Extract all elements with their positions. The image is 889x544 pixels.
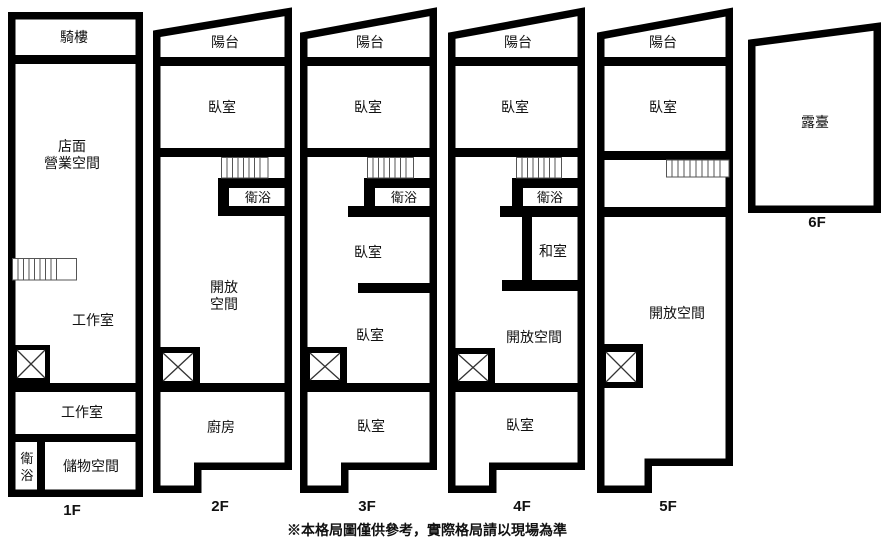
room-label-bathroom: 衛浴: [245, 190, 271, 205]
room-label-bedroom: 臥室: [506, 417, 534, 433]
floor-label-3f: 3F: [358, 498, 376, 515]
wall: [512, 178, 523, 216]
wall: [153, 148, 292, 157]
room-label-bathroom: 衛浴: [537, 190, 563, 205]
room-label-open-space: 開放空間: [506, 329, 562, 345]
floor-outline: [157, 12, 289, 490]
floor-3f-plan: 陽台 臥室 衛浴 臥室 臥室 臥室 3F: [300, 12, 437, 515]
wall: [364, 178, 375, 216]
wall: [8, 434, 143, 442]
room-label-balcony: 陽台: [649, 34, 677, 50]
floor-2f-plan: 陽台 臥室 衛浴 開放 空間 廚房 2F: [153, 12, 292, 515]
wall: [218, 206, 292, 216]
room-label-bedroom: 臥室: [649, 99, 677, 115]
staircase: [222, 158, 269, 179]
floor-outline: [601, 12, 730, 489]
room-label-kitchen: 廚房: [207, 419, 235, 435]
wall: [597, 57, 733, 66]
room-label-workshop: 工作室: [61, 404, 103, 420]
staircase-box: [368, 158, 414, 179]
room-label-open-space: 開放空間: [649, 305, 705, 321]
floor-4f-plan: 陽台 臥室 衛浴 和室 開放空間 臥室 4F: [448, 12, 585, 515]
staircase: [368, 158, 414, 179]
room-label-balcony: 陽台: [504, 34, 532, 50]
room-label-bedroom: 臥室: [208, 99, 236, 115]
room-label-bedroom: 臥室: [354, 99, 382, 115]
wall: [8, 383, 143, 392]
room-label-workshop: 工作室: [72, 312, 114, 328]
staircase-box: [13, 259, 77, 281]
floor-label-6f: 6F: [808, 214, 826, 231]
wall: [218, 178, 229, 216]
wall: [597, 207, 733, 217]
room-label-bathroom: 衛: [20, 451, 33, 466]
floor-label-4f: 4F: [513, 498, 531, 515]
wall: [218, 178, 292, 188]
wall: [300, 148, 437, 157]
room-label-terrace: 露臺: [801, 114, 829, 130]
staircase-box: [222, 158, 269, 179]
wall: [597, 151, 733, 160]
room-label-open-space: 空間: [210, 296, 238, 312]
wall: [8, 55, 143, 64]
wall: [358, 283, 437, 293]
room-label-bathroom: 浴: [20, 468, 33, 483]
elevator-shaft: [12, 345, 50, 383]
room-label-storage: 儲物空間: [63, 458, 119, 474]
floor-plan-sheet: 騎樓 店面 營業空間 工作室 工作室 衛 浴 儲物空間 1F 陽台 臥室: [0, 0, 889, 544]
disclaimer-note: ※本格局圖僅供參考，實際格局請以現場為準: [287, 522, 567, 538]
wall: [502, 280, 585, 291]
wall: [348, 206, 437, 217]
room-label-bedroom: 臥室: [501, 99, 529, 115]
floor-label-5f: 5F: [659, 498, 677, 515]
room-label-balcony: 陽台: [356, 34, 384, 50]
room-label-arcade: 騎樓: [60, 29, 88, 45]
wall: [448, 148, 585, 157]
floor-1f-plan: 騎樓 店面 營業空間 工作室 工作室 衛 浴 儲物空間 1F: [8, 16, 143, 519]
wall: [153, 57, 292, 66]
wall: [37, 440, 45, 493]
wall: [522, 214, 532, 284]
wall: [300, 57, 437, 66]
floor-5f-plan: 陽台 臥室 開放空間 5F: [597, 12, 733, 515]
room-label-balcony: 陽台: [211, 34, 239, 50]
floor-label-2f: 2F: [211, 498, 229, 515]
room-label-tatami: 和室: [539, 243, 567, 259]
floor-label-1f: 1F: [63, 502, 81, 519]
wall: [448, 57, 585, 66]
staircase: [13, 259, 77, 281]
room-label-bedroom: 臥室: [357, 418, 385, 434]
room-label-open-space: 開放: [210, 279, 238, 295]
elevator-shaft: [598, 344, 643, 388]
room-label-storefront: 店面: [58, 138, 86, 154]
elevator-shaft: [157, 347, 200, 387]
room-label-bedroom: 臥室: [354, 244, 382, 260]
room-label-bedroom: 臥室: [356, 327, 384, 343]
room-label-storefront: 營業空間: [44, 155, 100, 171]
floor-plan-canvas: 騎樓 店面 營業空間 工作室 工作室 衛 浴 儲物空間 1F 陽台 臥室: [0, 0, 889, 544]
floor-6f-plan: 露臺 6F: [752, 27, 878, 232]
floor-outline: [12, 16, 140, 494]
elevator-shaft: [452, 348, 495, 387]
elevator-shaft: [304, 347, 347, 385]
staircase: [667, 160, 730, 177]
staircase: [517, 158, 562, 179]
room-label-bathroom: 衛浴: [391, 190, 417, 205]
